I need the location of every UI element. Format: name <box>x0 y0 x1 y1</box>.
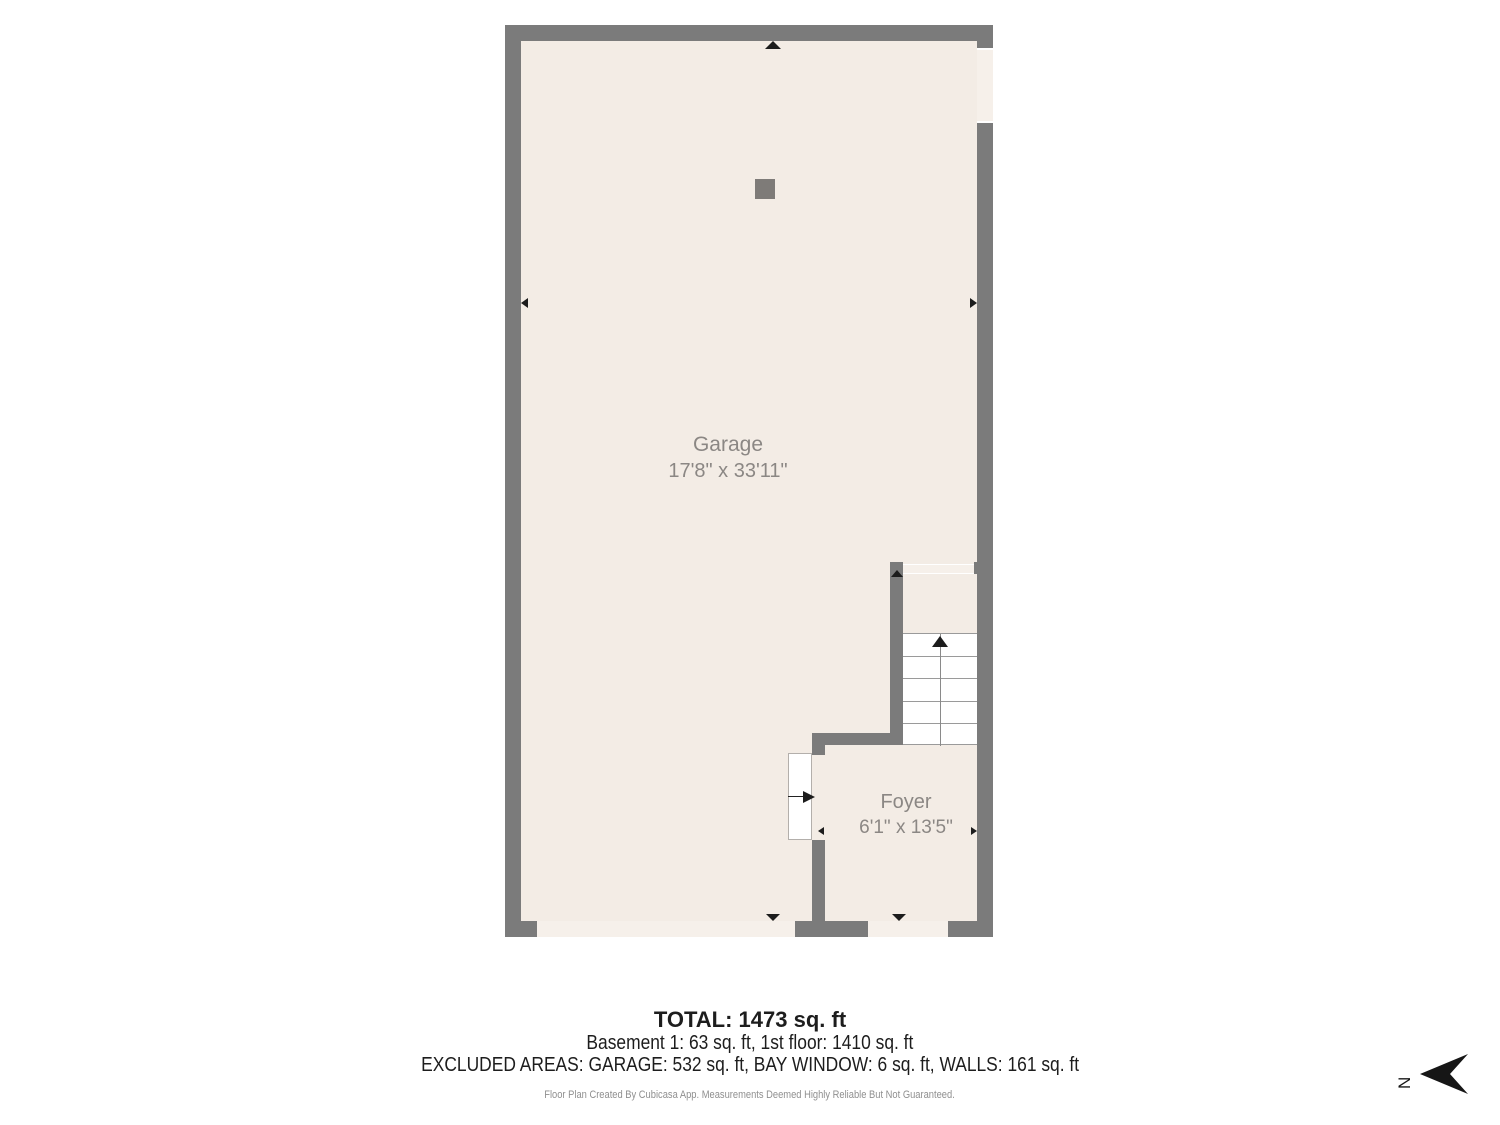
foyer-dimensions: 6'1" x 13'5" <box>806 815 1006 841</box>
floor-areas-text: Basement 1: 63 sq. ft, 1st floor: 1410 s… <box>0 1032 1500 1054</box>
stairwell-wall-stub <box>974 562 984 574</box>
marker-garage-bottom-icon <box>766 914 780 921</box>
excluded-areas-text: EXCLUDED AREAS: GARAGE: 532 sq. ft, BAY … <box>0 1054 1500 1076</box>
garage-dimensions: 17'8" x 33'11" <box>578 458 878 484</box>
marker-right-wall-icon <box>970 298 977 308</box>
foyer-label: Foyer 6'1" x 13'5" <box>806 789 1006 841</box>
marker-stairwell-icon <box>891 570 903 577</box>
wall-top <box>505 25 993 41</box>
svg-text:N: N <box>1395 1077 1414 1089</box>
north-compass: N <box>1394 1048 1470 1102</box>
stair-direction-up-icon <box>932 636 948 647</box>
foyer-left-wall-lower <box>812 840 825 921</box>
stair-run-line <box>940 634 941 746</box>
floor-plan-page: Garage 17'8" x 33'11" Foyer 6'1" x 13'5"… <box>0 0 1500 1125</box>
garage-name: Garage <box>578 432 878 458</box>
window-opening-right <box>977 48 993 123</box>
staircase <box>903 633 977 745</box>
marker-left-wall-icon <box>521 298 528 308</box>
foyer-name: Foyer <box>806 789 1006 815</box>
footer-summary: TOTAL: 1473 sq. ft Basement 1: 63 sq. ft… <box>0 1008 1500 1102</box>
floor-plan: Garage 17'8" x 33'11" Foyer 6'1" x 13'5" <box>0 0 1500 1125</box>
marker-top-wall-icon <box>765 41 781 49</box>
garage-label: Garage 17'8" x 33'11" <box>578 432 878 484</box>
foyer-entry-opening <box>868 921 948 937</box>
foyer-left-wall-upper <box>812 733 825 755</box>
support-post <box>755 179 775 199</box>
north-arrow-icon: N <box>1394 1048 1470 1102</box>
stairwell-top-opening <box>903 564 975 574</box>
foyer-top-wall <box>812 733 903 745</box>
wall-left <box>505 25 521 937</box>
total-area-text: TOTAL: 1473 sq. ft <box>0 1008 1500 1032</box>
marker-foyer-bottom-icon <box>892 914 906 921</box>
disclaimer-text: Floor Plan Created By Cubicasa App. Meas… <box>0 1089 1500 1102</box>
garage-door-opening <box>537 921 795 937</box>
stairwell-wall <box>890 562 903 745</box>
